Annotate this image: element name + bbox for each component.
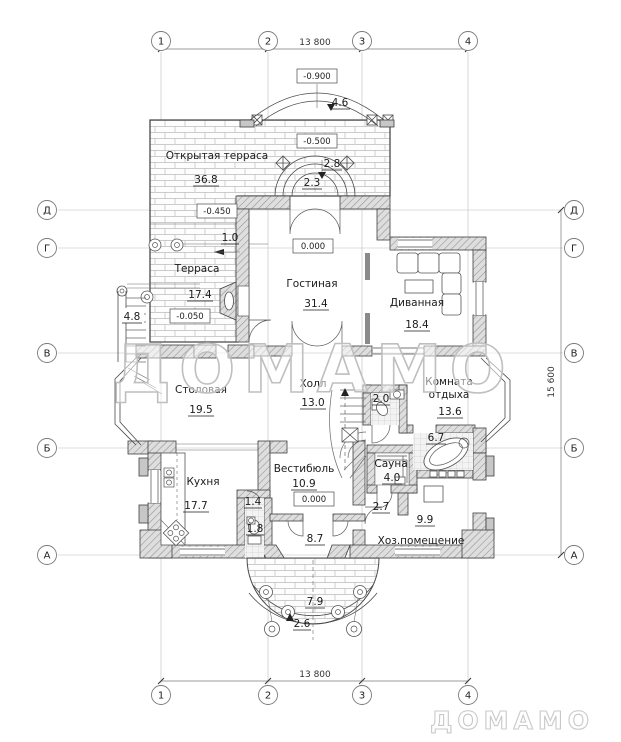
svg-text:-0.450: -0.450 bbox=[203, 207, 230, 217]
floor-plan-drawing: 13 800 13 800 15 600 1 2 3 4 1 2 3 4 Д Г… bbox=[0, 0, 621, 742]
terrace-step-width: 1.0 bbox=[222, 232, 239, 244]
svg-text:Б: Б bbox=[44, 444, 51, 455]
elevation-upper-terrace: -0.500 bbox=[297, 134, 337, 148]
axis-bubble-A-left: А bbox=[38, 546, 57, 565]
svg-text:0.000: 0.000 bbox=[301, 242, 325, 252]
window-sofa-north bbox=[398, 238, 432, 249]
balcony-area: 4.6 bbox=[332, 97, 349, 109]
room-sofa-area: 18.4 bbox=[405, 319, 429, 331]
porch-area: 7.9 bbox=[307, 596, 324, 608]
axis-bubble-1-top: 1 bbox=[152, 32, 171, 51]
porch-steps-area: 2.6 bbox=[294, 618, 311, 630]
room-open-terrace-area: 36.8 bbox=[194, 174, 217, 186]
room-vestibule-area: 10.9 bbox=[292, 478, 315, 490]
axis-bubble-1-bottom: 1 bbox=[152, 686, 171, 705]
axis-bubble-4-bottom: 4 bbox=[459, 686, 478, 705]
room-sauna-label: Сауна bbox=[374, 458, 407, 470]
dimension-top: 13 800 bbox=[299, 38, 331, 48]
room-kitchen-area: 17.7 bbox=[184, 500, 207, 512]
entry-arc-area: 2.3 bbox=[304, 177, 321, 189]
elevation-terrace: -0.050 bbox=[170, 309, 210, 323]
axis-bubble-G-left: Г bbox=[38, 239, 57, 258]
svg-text:3: 3 bbox=[359, 691, 365, 702]
tambour-area: 8.7 bbox=[307, 533, 324, 545]
window-south-left bbox=[180, 547, 225, 556]
room-open-terrace-label: Открытая терраса bbox=[166, 150, 268, 162]
watermark-center: ДОМАМО bbox=[112, 331, 513, 408]
elevation-vestibule: 0.000 bbox=[294, 492, 334, 506]
utility-fixtures bbox=[424, 471, 464, 502]
svg-text:Г: Г bbox=[571, 244, 577, 255]
svg-text:А: А bbox=[571, 551, 578, 562]
axis-bubble-V-right: В bbox=[565, 344, 584, 363]
room-vestibule-label: Вестибюль bbox=[274, 463, 335, 475]
svg-text:1: 1 bbox=[158, 37, 164, 48]
axis-bubble-A-right: А bbox=[565, 546, 584, 565]
shaft bbox=[342, 428, 358, 442]
room-living-label: Гостиная bbox=[286, 278, 337, 290]
room-living-area: 31.4 bbox=[304, 298, 328, 310]
sauna-corridor-area: 2.7 bbox=[373, 501, 390, 513]
window-kitchen-west bbox=[149, 470, 160, 503]
axis-bubble-G-right: Г bbox=[565, 239, 584, 258]
closet-area: 1.4 bbox=[245, 496, 262, 508]
room-terrace-label: Терраса bbox=[174, 263, 220, 275]
axis-bubble-3-top: 3 bbox=[353, 32, 372, 51]
room-sauna-area: 4.0 bbox=[384, 472, 401, 484]
svg-text:Д: Д bbox=[43, 206, 51, 217]
window-east bbox=[474, 282, 485, 315]
bath-area: 6.7 bbox=[428, 432, 445, 444]
entry-arc-top-area: 2.8 bbox=[324, 158, 341, 170]
svg-text:3: 3 bbox=[359, 37, 365, 48]
svg-text:2: 2 bbox=[265, 691, 271, 702]
svg-text:4: 4 bbox=[465, 691, 471, 702]
svg-text:2: 2 bbox=[265, 37, 271, 48]
svg-text:4: 4 bbox=[465, 37, 471, 48]
wc-bottom-area: 1.8 bbox=[247, 523, 264, 535]
dimension-bottom: 13 800 bbox=[299, 670, 331, 680]
svg-text:1: 1 bbox=[158, 691, 164, 702]
room-terrace-area: 17.4 bbox=[188, 289, 212, 301]
svg-text:Б: Б bbox=[571, 444, 578, 455]
svg-text:В: В bbox=[44, 349, 51, 360]
elevation-balcony: -0.900 bbox=[297, 69, 337, 83]
room-utility-area: 9.9 bbox=[417, 514, 434, 526]
axis-bubble-D-right: Д bbox=[565, 201, 584, 220]
svg-text:Г: Г bbox=[44, 244, 50, 255]
axis-bubble-3-bottom: 3 bbox=[353, 686, 372, 705]
axis-bubble-V-left: В bbox=[38, 344, 57, 363]
room-kitchen-label: Кухня bbox=[186, 476, 219, 488]
svg-text:Д: Д bbox=[570, 206, 578, 217]
axis-bubble-D-left: Д bbox=[38, 201, 57, 220]
svg-text:А: А bbox=[44, 551, 51, 562]
axis-bubble-4-top: 4 bbox=[459, 32, 478, 51]
svg-text:-0.500: -0.500 bbox=[303, 137, 330, 147]
axis-bubble-B-right: Б bbox=[565, 439, 584, 458]
svg-text:В: В bbox=[571, 349, 578, 360]
elevation-living: 0.000 bbox=[293, 239, 333, 253]
svg-text:0.000: 0.000 bbox=[302, 495, 326, 505]
side-stairs-area: 4.8 bbox=[124, 311, 141, 323]
axis-bubble-B-left: Б bbox=[38, 439, 57, 458]
room-utility-label: Хоз.помещение bbox=[378, 535, 465, 547]
dimension-right: 15 600 bbox=[547, 366, 557, 398]
axis-bubble-2-bottom: 2 bbox=[259, 686, 278, 705]
room-sofa-label: Диванная bbox=[390, 297, 444, 309]
elevation-terrace-step: -0.450 bbox=[197, 204, 237, 218]
coffee-table bbox=[405, 280, 433, 293]
svg-text:-0.050: -0.050 bbox=[176, 312, 203, 322]
floor-plan-page: 13 800 13 800 15 600 1 2 3 4 1 2 3 4 Д Г… bbox=[0, 0, 621, 742]
svg-text:-0.900: -0.900 bbox=[303, 72, 330, 82]
watermark-corner: ДОМАМО bbox=[430, 706, 594, 735]
fireplace bbox=[220, 282, 249, 320]
window-south-right bbox=[395, 547, 440, 556]
axis-bubble-2-top: 2 bbox=[259, 32, 278, 51]
